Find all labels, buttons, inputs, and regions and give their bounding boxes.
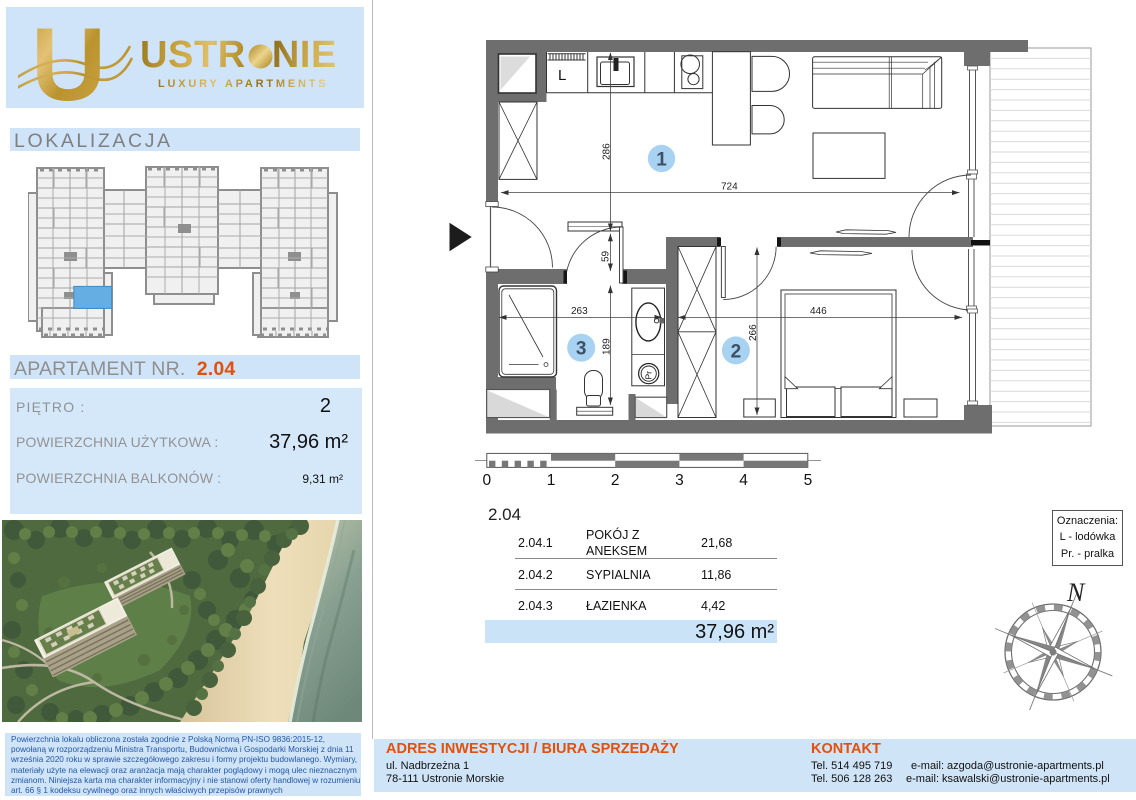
svg-text:446: 446 bbox=[810, 306, 827, 317]
svg-text:286: 286 bbox=[602, 143, 613, 160]
svg-text:L: L bbox=[558, 67, 566, 84]
svg-text:189: 189 bbox=[602, 338, 613, 355]
svg-text:2: 2 bbox=[611, 472, 620, 489]
svg-text:4: 4 bbox=[739, 472, 748, 489]
svg-text:3: 3 bbox=[675, 472, 684, 489]
svg-text:5: 5 bbox=[804, 472, 813, 489]
svg-text:N: N bbox=[1066, 578, 1086, 607]
svg-text:1: 1 bbox=[656, 150, 667, 171]
svg-text:U: U bbox=[31, 16, 106, 108]
svg-text:59: 59 bbox=[601, 250, 612, 262]
svg-text:1: 1 bbox=[547, 472, 556, 489]
svg-text:263: 263 bbox=[571, 306, 588, 317]
svg-text:3: 3 bbox=[576, 339, 587, 360]
svg-text:266: 266 bbox=[748, 324, 759, 341]
svg-text:Pr: Pr bbox=[644, 371, 654, 380]
svg-text:0: 0 bbox=[482, 472, 491, 489]
svg-text:2: 2 bbox=[731, 342, 742, 363]
svg-text:724: 724 bbox=[721, 182, 738, 193]
